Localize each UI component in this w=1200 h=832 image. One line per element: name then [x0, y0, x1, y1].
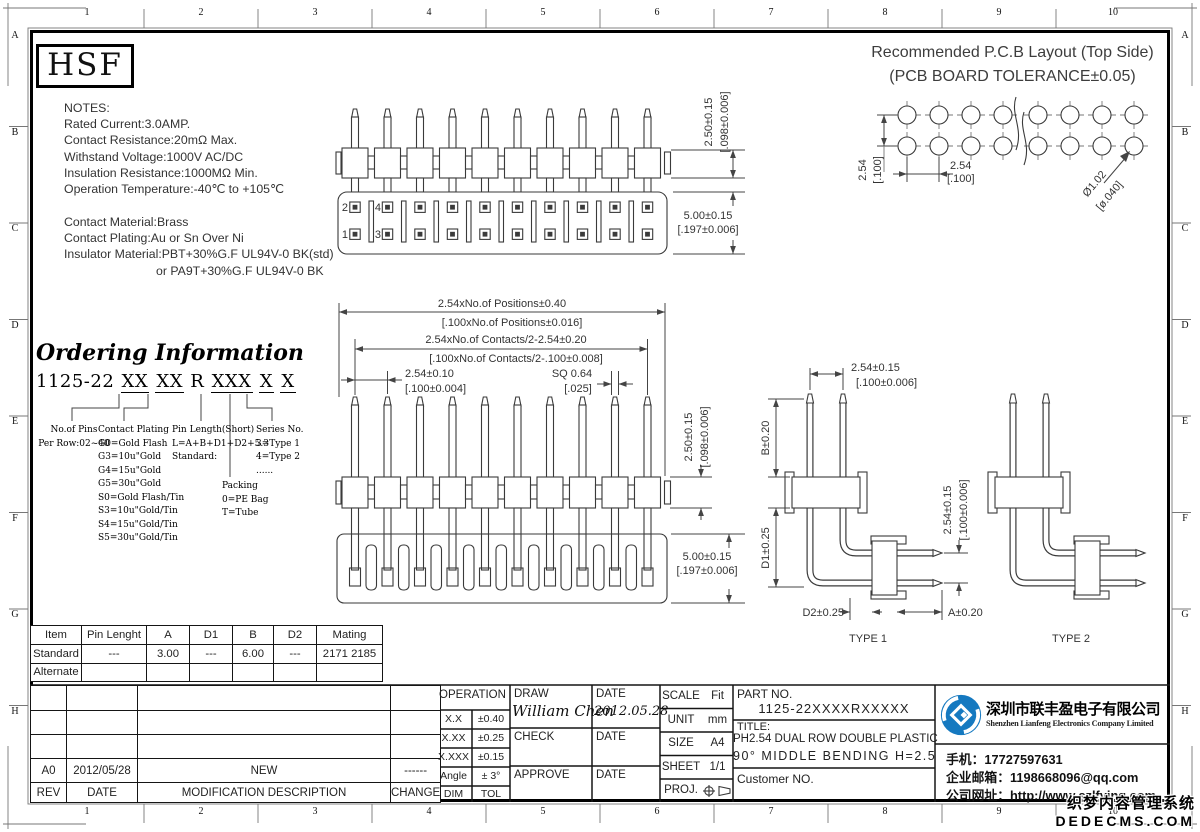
text-line: L=A+B+D1+D2+5.3: [172, 438, 269, 452]
tolerance-cell: X.XX: [435, 729, 472, 748]
grid-row-label: E: [5, 416, 25, 512]
dim-text: [.025]: [564, 383, 592, 395]
revision-cell: [67, 686, 138, 711]
text-line: Insulator Material:PBT+30%G.F UL94V-0 BK…: [64, 246, 334, 262]
tolerance-cell: ±0.40: [472, 710, 510, 729]
revision-cell: [391, 735, 441, 759]
tolerance-cell: DIM: [435, 786, 472, 802]
company-name-en: Shenzhen Lianfeng Electronics Company Li…: [986, 719, 1168, 728]
spec-header-cell: A: [147, 626, 190, 645]
dim-text: [.100xNo.of Contacts/2-.100±0.008]: [429, 353, 603, 365]
draw-date-value: 2012.05.28: [594, 704, 660, 719]
grid-col-label: 3: [258, 7, 372, 18]
code-plating: XX: [155, 371, 184, 393]
drawing-title-line2: 90° MIDDLE BENDING H=2.5: [733, 749, 935, 763]
grid-col-label: 4: [372, 806, 486, 817]
operation-label: OPERATION: [435, 689, 510, 701]
grid-col-label: 5: [486, 806, 600, 817]
dim-text: [.100]: [947, 173, 975, 185]
watermark-line1: 织梦内容管理系统: [1055, 792, 1195, 813]
spec-cell: [274, 663, 317, 682]
spec-cell: 2171 2185: [317, 645, 383, 664]
tolerance-cell: Angle: [435, 767, 472, 786]
tolerance-cell: X.XXX: [435, 748, 472, 767]
third-angle-projection-icon: [702, 783, 733, 799]
pcb-layout-subtitle: (PCB BOARD TOLERANCE±0.05): [855, 68, 1170, 86]
grid-row-label: A: [1175, 30, 1195, 126]
dim-text: SQ 0.64: [552, 368, 592, 380]
revision-cell: REV: [31, 783, 67, 803]
spec-header-cell: B: [233, 626, 274, 645]
dim-text: 2.54±0.15: [851, 362, 900, 374]
text-line: G5=30u"Gold: [98, 478, 184, 492]
grid-col-label: 1: [30, 806, 144, 817]
dim-text: A±0.20: [948, 607, 983, 619]
dim-text: TYPE 1: [849, 633, 887, 645]
dim-text: [.098±0.006]: [699, 406, 711, 467]
revision-cell: [31, 686, 67, 711]
revision-cell: A0: [31, 759, 67, 783]
spec-cell: ---: [82, 645, 147, 664]
dim-text: 2.50±0.15: [683, 413, 695, 462]
dim-text: [.100xNo.of Positions±0.016]: [442, 317, 583, 329]
dim-text: 2.54: [950, 160, 971, 172]
tolerance-cell: TOL: [472, 786, 510, 802]
dim-text: 5.00±0.15: [683, 551, 732, 563]
grid-col-label: 9: [942, 7, 1056, 18]
revision-cell: [31, 711, 67, 735]
grid-col-label: 3: [258, 806, 372, 817]
spec-table: ItemPin LenghtAD1BD2MatingStandard---3.0…: [30, 625, 383, 682]
grid-col-label: 2: [144, 806, 258, 817]
revision-cell: MODIFICATION DESCRIPTION: [138, 783, 391, 803]
dim-text: [.100±0.006]: [856, 377, 917, 389]
watermark-line2: DEDECMS.COM: [1055, 813, 1195, 829]
revision-cell: [138, 711, 391, 735]
customer-no-label: Customer NO.: [737, 772, 814, 786]
text-line: T=Tube: [222, 507, 269, 521]
grid-row-label: C: [1175, 223, 1195, 319]
tolerance-cell: ± 3°: [472, 767, 510, 786]
dim-text: 2.54xNo.of Positions±0.40: [438, 298, 566, 310]
grid-row-label: C: [5, 223, 25, 319]
revision-cell: NEW: [138, 759, 391, 783]
size-label: SIZE: [660, 732, 702, 755]
approve-label: APPROVE: [514, 769, 570, 781]
notes-title: NOTES:: [64, 100, 284, 116]
drawing-sheet: 24132.50±0.15[.098±0.006]5.00±0.15[.197±…: [0, 0, 1200, 832]
dim-text: [.197±0.006]: [677, 224, 738, 236]
text-line: Operation Temperature:-40℃ to +105℃: [64, 181, 284, 197]
revision-cell: [67, 735, 138, 759]
grid-col-label: 8: [828, 806, 942, 817]
grid-col-label: 10: [1056, 7, 1170, 18]
draw-label: DRAW: [514, 688, 549, 700]
text-line: Pin Length(Short): [172, 424, 269, 438]
spec-header-cell: Mating: [317, 626, 383, 645]
notes-block: NOTES: Rated Current:3.0AMP.Contact Resi…: [64, 100, 284, 197]
part-no-value: 1125-22XXXXRXXXXX: [733, 701, 935, 716]
dim-text: B±0.20: [760, 421, 772, 456]
text-line: Series No.: [256, 424, 303, 438]
pin-number-label: 1: [342, 229, 348, 241]
spec-cell: [233, 663, 274, 682]
grid-col-label: 6: [600, 806, 714, 817]
grid-row-label: D: [1175, 320, 1195, 416]
code-r: R: [190, 371, 204, 392]
dim-text: [.100±0.006]: [958, 479, 970, 540]
grid-col-label: 7: [714, 806, 828, 817]
ordering-packing-note: Packing0=PE BagT=Tube: [222, 480, 269, 521]
revision-cell: ------: [391, 759, 441, 783]
text-line: Contact Plating:Au or Sn Over Ni: [64, 230, 334, 246]
draw-date-label: DATE: [596, 688, 626, 700]
sheet-value: 1/1: [702, 755, 733, 779]
tolerance-cell: X.X: [435, 710, 472, 729]
title-label: TITLE:: [737, 721, 770, 733]
grid-row-label: F: [5, 513, 25, 609]
company-phone: 手机：17727597631: [946, 749, 1168, 768]
text-line: Contact Material:Brass: [64, 214, 334, 230]
code-series: X: [280, 371, 295, 393]
text-line: S4=15u"Gold/Tin: [98, 519, 184, 533]
unit-value: mm: [702, 708, 733, 732]
code-pins: XX: [121, 371, 150, 393]
revision-cell: CHANGE: [391, 783, 441, 803]
revision-cell: [391, 711, 441, 735]
ordering-code: 1125-22 XX XX R XXX X X: [36, 371, 296, 392]
tolerance-cell: ±0.15: [472, 748, 510, 767]
dim-text: 2.54±0.10: [405, 368, 454, 380]
grid-col-label: 4: [372, 7, 486, 18]
company-name-cn: 深圳市联丰盈电子有限公司: [986, 698, 1168, 719]
revision-cell: DATE: [67, 783, 138, 803]
text-line: 3=Type 1: [256, 438, 303, 452]
dim-text: [.100]: [872, 156, 884, 184]
hsf-logo: HSF: [36, 44, 134, 88]
drawing-title-line1: PH2.54 DUAL ROW DOUBLE PLASTIC: [733, 733, 935, 745]
pcb-layout-title: Recommended P.C.B Layout (Top Side): [855, 44, 1170, 62]
revision-cell: [138, 735, 391, 759]
dim-text: 5.00±0.15: [684, 210, 733, 222]
dim-text: [.100±0.004]: [405, 383, 466, 395]
spec-cell: Standard: [31, 645, 82, 664]
grid-col-label: 2: [144, 7, 258, 18]
code-packing: X: [259, 371, 274, 393]
spec-cell: ---: [190, 645, 233, 664]
text-line: S0=Gold Flash/Tin: [98, 492, 184, 506]
spec-cell: [82, 663, 147, 682]
grid-col-label: 6: [600, 7, 714, 18]
spec-header-cell: Pin Lenght: [82, 626, 147, 645]
grid-col-label: 5: [486, 7, 600, 18]
dim-text: TYPE 2: [1052, 633, 1090, 645]
code-length: XXX: [211, 371, 253, 393]
text-line: 0=PE Bag: [222, 494, 269, 508]
approve-date-label: DATE: [596, 769, 626, 781]
unit-label: UNIT: [660, 708, 702, 732]
revision-table: A02012/05/28NEW------REVDATEMODIFICATION…: [30, 685, 441, 803]
text-line: 4=Type 2: [256, 451, 303, 465]
grid-row-label: B: [1175, 127, 1195, 223]
drawn-by-signature: William Chen: [512, 702, 592, 720]
dim-text: 2.54: [857, 159, 869, 180]
scale-label: SCALE: [660, 685, 702, 708]
part-no-label: PART NO.: [737, 687, 792, 701]
tolerance-cell: ±0.25: [472, 729, 510, 748]
pin-number-label: 4: [375, 202, 381, 214]
text-line: or PA9T+30%G.F UL94V-0 BK: [156, 263, 334, 279]
text-line: Insulation Resistance:1000MΩ Min.: [64, 165, 284, 181]
grid-col-label: 9: [942, 806, 1056, 817]
spec-cell: [190, 663, 233, 682]
text-line: G4=15u"Gold: [98, 465, 184, 479]
ordering-title: Ordering Information: [36, 340, 304, 366]
pin-number-label: 2: [342, 202, 348, 214]
scale-value: Fit: [702, 685, 733, 708]
company-logo-icon: [938, 692, 984, 738]
grid-row-label: H: [1175, 706, 1195, 802]
grid-col-label: 1: [30, 7, 144, 18]
check-date-label: DATE: [596, 731, 626, 743]
grid-row-label: H: [5, 706, 25, 802]
spec-cell: 6.00: [233, 645, 274, 664]
spec-cell: [317, 663, 383, 682]
grid-row-label: B: [5, 127, 25, 223]
grid-row-label: F: [1175, 513, 1195, 609]
text-line: S5=30u"Gold/Tin: [98, 532, 184, 546]
revision-cell: 2012/05/28: [67, 759, 138, 783]
dim-text: 2.54xNo.of Contacts/2-2.54±0.20: [425, 334, 586, 346]
code-prefix: 1125-22: [36, 371, 114, 392]
dim-text: [.197±0.006]: [676, 565, 737, 577]
pin-number-label: 3: [375, 229, 381, 241]
check-label: CHECK: [514, 731, 554, 743]
text-line: Packing: [222, 480, 269, 494]
ordering-series-note: Series No.3=Type 14=Type 2......: [256, 424, 303, 478]
grid-col-label: 7: [714, 7, 828, 18]
size-value: A4: [702, 732, 733, 755]
spec-header-cell: Item: [31, 626, 82, 645]
grid-row-label: G: [1175, 609, 1195, 705]
material-block: Contact Material:BrassContact Plating:Au…: [64, 214, 334, 279]
company-email: 企业邮箱：1198668096@qq.com: [946, 767, 1168, 786]
notes-lines: Rated Current:3.0AMP.Contact Resistance:…: [64, 116, 284, 197]
text-line: ......: [256, 465, 303, 479]
revision-cell: [138, 686, 391, 711]
spec-cell: ---: [274, 645, 317, 664]
spec-cell: [147, 663, 190, 682]
grid-col-label: 8: [828, 7, 942, 18]
dim-text: D2±0.25: [802, 607, 844, 619]
watermark: 织梦内容管理系统 DEDECMS.COM: [1055, 792, 1195, 829]
text-line: Withstand Voltage:1000V AC/DC: [64, 149, 284, 165]
spec-cell: 3.00: [147, 645, 190, 664]
revision-cell: [391, 686, 441, 711]
grid-row-label: A: [5, 30, 25, 126]
grid-row-label: D: [5, 320, 25, 416]
text-line: Rated Current:3.0AMP.: [64, 116, 284, 132]
spec-cell: Alternate: [31, 663, 82, 682]
text-line: Standard:: [172, 451, 269, 465]
revision-cell: [31, 735, 67, 759]
revision-cell: [67, 711, 138, 735]
text-line: S3=10u"Gold/Tin: [98, 505, 184, 519]
sheet-label: SHEET: [660, 755, 702, 779]
ordering-pinlength-note: Pin Length(Short)L=A+B+D1+D2+5.3Standard…: [172, 424, 269, 465]
proj-label: PROJ.: [660, 779, 702, 802]
grid-row-label: G: [5, 609, 25, 705]
dim-text: [.098±0.006]: [719, 91, 731, 152]
spec-header-cell: D2: [274, 626, 317, 645]
grid-row-label: E: [1175, 416, 1195, 512]
dim-text: 2.54±0.15: [942, 486, 954, 535]
spec-header-cell: D1: [190, 626, 233, 645]
text-line: Contact Resistance:20mΩ Max.: [64, 132, 284, 148]
dim-text: D1±0.25: [760, 527, 772, 569]
dim-text: 2.50±0.15: [703, 98, 715, 147]
